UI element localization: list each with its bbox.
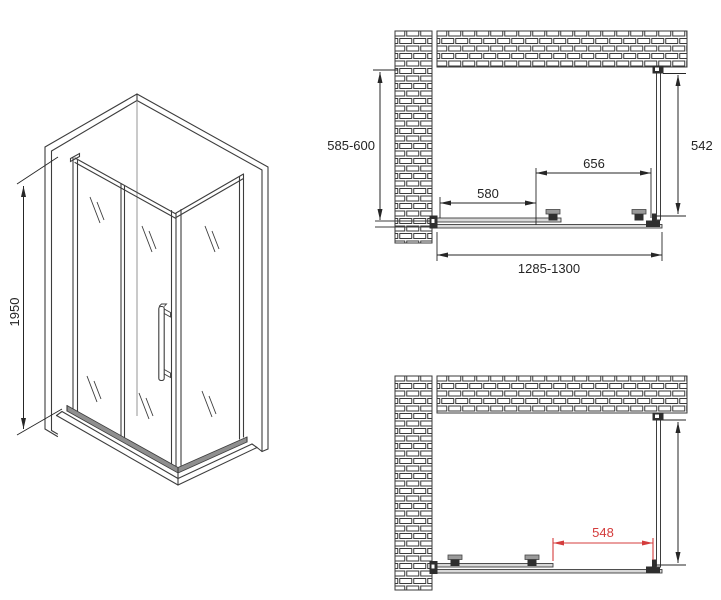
height-dimension-label: 1950 <box>7 298 22 327</box>
wall-hatch-top <box>437 31 687 67</box>
technical-drawing-svg: 1950 <box>0 0 721 600</box>
plan-view-closed: 585-600 542 656 580 1285-1300 <box>327 31 712 276</box>
glass-reflection-marks <box>87 197 219 419</box>
side-panel <box>657 73 661 220</box>
dimension-glass-depth-542: 542 <box>655 74 713 217</box>
door-width-dimension-label: 656 <box>583 156 605 171</box>
corner-connector <box>646 221 660 228</box>
fixed-width-dimension-label: 580 <box>477 186 499 201</box>
dimension-fixed-width-580: 580 <box>440 186 536 218</box>
door-roller <box>632 210 646 221</box>
dimension-opening-548: 548 <box>553 525 653 561</box>
dimension-depth-585-600: 585-600 <box>327 70 398 220</box>
wall-hatch-top <box>437 376 687 413</box>
depth-dimension-label: 585-600 <box>327 138 375 153</box>
door-handle <box>159 304 171 381</box>
side-panel <box>657 420 661 567</box>
isometric-view: 1950 <box>7 94 268 485</box>
wall-hatch-left <box>395 376 432 590</box>
glass-depth-dimension-label: 542 <box>691 138 713 153</box>
dimension-overall-width-1285-1300: 1285-1300 <box>437 232 662 276</box>
wall-panels <box>45 94 268 452</box>
opening-dimension-label: 548 <box>592 525 614 540</box>
plan-view-open: 548 <box>395 376 687 590</box>
sliding-door-assembly <box>430 66 664 229</box>
wall-hatch-left <box>395 31 432 243</box>
drawing-canvas: 1950 <box>0 0 721 600</box>
overall-width-dimension-label: 1285-1300 <box>518 261 580 276</box>
shower-tray <box>57 406 263 486</box>
sliding-door-assembly-open <box>430 413 664 575</box>
dimension-height-1950: 1950 <box>7 157 62 435</box>
